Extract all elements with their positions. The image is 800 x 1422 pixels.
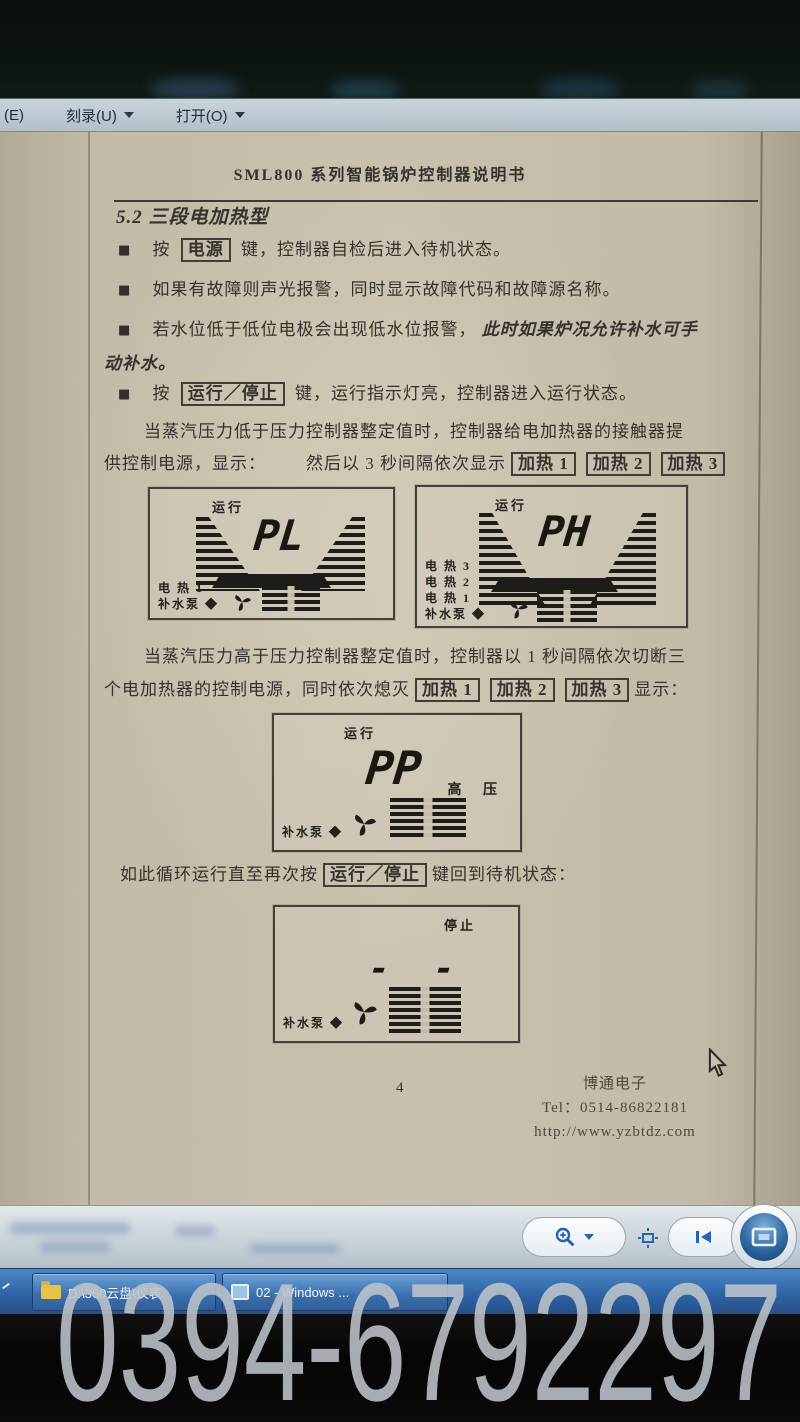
reflection-blob (690, 80, 750, 98)
para1-line2: 供控制电源，显示：然后以 3 秒间隔依次显示加热 1加热 2加热 3 (104, 452, 730, 476)
bullet-2: ■ 如果有故障则声光报警，同时显示故障代码和故障源名称。 (118, 278, 621, 303)
lcd-status-label: 停止 (444, 915, 476, 934)
company-tel: Tel：0514-86822181 (500, 1096, 730, 1120)
reflection-blob (330, 80, 400, 98)
fan-icon (348, 808, 380, 840)
reflection-blob (540, 78, 620, 98)
para2-line2b: 显示： (634, 680, 688, 699)
bullet-marker: ■ (118, 279, 131, 303)
lcd-display-stop: 停止 - - 补水泵 ◆ (273, 905, 520, 1043)
heat2-key-box: 加热 2 (586, 452, 651, 476)
title-rule (114, 200, 758, 202)
lcd-left-labels: 补水泵 ◆ (283, 1015, 344, 1031)
heat2-key-box: 加热 2 (490, 678, 555, 702)
blur-artifact (10, 1222, 130, 1234)
reflection-blob (150, 78, 240, 98)
lcd-display-ph: 运行 PH 电 热 3 电 热 2 电 热 1 补水泵 ◆ (415, 485, 688, 628)
bullet-3: ■ 若水位低于低位电极会出现低水位报警， 此时如果炉况允许补水可手 (118, 318, 698, 343)
page-number: 4 (396, 1076, 405, 1100)
feedpump-label: 补水泵 ◆ (425, 606, 486, 622)
para2-line1: 当蒸汽压力高于压力控制器整定值时，控制器以 1 秒间隔依次切断三 (144, 645, 686, 669)
heat3-key-box: 加热 3 (565, 678, 630, 702)
boiler-stripes-icon (262, 586, 320, 612)
bullet-marker: ■ (118, 383, 131, 407)
chevron-down-icon (124, 112, 134, 118)
heat1-key-box: 加热 1 (415, 678, 480, 702)
lcd-status-label: 运行 (495, 495, 527, 514)
para1-line2a: 供控制电源，显示： (104, 454, 266, 473)
heater3-label: 电 热 3 (425, 558, 486, 574)
bullet-3-italic: 此时如果炉况允许补水可手 (482, 320, 698, 339)
lcd-left-labels: 电 热 1 补水泵 ◆ (158, 580, 219, 612)
power-key-box: 电源 (181, 238, 231, 262)
monitor-dark-area (0, 0, 800, 98)
bullet-4: ■ 按 运行／停止 键，运行指示灯亮，控制器进入运行状态。 (118, 382, 637, 407)
feedpump-label: 补水泵 ◆ (158, 596, 219, 612)
heat1-key-box: 加热 1 (511, 452, 576, 476)
lcd-value: PL (251, 511, 307, 560)
boiler-stripes-icon (537, 590, 597, 622)
heater2-label: 电 热 2 (425, 574, 486, 590)
bullet-1: ■ 按 电源 键，控制器自检后进入待机状态。 (118, 238, 511, 263)
para1-line2b: 然后以 3 秒间隔依次显示 (306, 454, 506, 473)
bullet-3-line2: 动补水。 (104, 352, 176, 376)
page-crease-line (753, 132, 762, 1205)
footer-company-block: 博通电子 Tel：0514-86822181 http://www.yzbtdz… (500, 1072, 730, 1144)
bullet-4-pre: 按 (153, 384, 171, 403)
lcd-left-labels: 电 热 3 电 热 2 电 热 1 补水泵 ◆ (425, 558, 486, 622)
watermark-phone-number: 0394-6792297 (56, 1258, 782, 1422)
para3: 如此循环运行直至再次按运行／停止键回到待机状态： (120, 863, 576, 887)
bullet-marker: ■ (118, 239, 131, 263)
lcd-status-label: 运行 (212, 497, 244, 516)
page-left-edge (88, 132, 90, 1205)
screen: (E) 刻录(U) 打开(O) SML800 系列智能锅炉控制器说明书 5.2 … (0, 0, 800, 1422)
picture-frame-icon (751, 1227, 777, 1247)
bullet-1-post: 键，控制器自检后进入待机状态。 (241, 240, 511, 259)
feedpump-label: 补水泵 ◆ (282, 824, 343, 840)
fan-icon (230, 590, 254, 614)
bullet-marker: ■ (118, 319, 131, 343)
menu-open[interactable]: 打开(O) (176, 105, 245, 126)
heat3-key-box: 加热 3 (661, 452, 726, 476)
chevron-down-icon (235, 112, 245, 118)
menu-burn-label: 刻录(U) (66, 105, 117, 126)
para3-post: 键回到待机状态： (432, 865, 576, 884)
run-stop-key-box: 运行／停止 (323, 863, 427, 887)
menu-burn[interactable]: 刻录(U) (66, 105, 134, 126)
para3-pre: 如此循环运行直至再次按 (120, 865, 318, 884)
document-title: SML800 系列智能锅炉控制器说明书 (0, 164, 760, 188)
bullet-2-text: 如果有故障则声光报警，同时显示故障代码和故障源名称。 (153, 280, 621, 299)
run-stop-key-box: 运行／停止 (181, 382, 285, 406)
lcd-left-labels: 补水泵 ◆ (282, 824, 343, 840)
menubar: (E) 刻录(U) 打开(O) (0, 98, 800, 132)
fan-icon (347, 995, 381, 1029)
boiler-stripes-icon (390, 798, 466, 840)
para2-line2a: 个电加热器的控制电源，同时依次熄灭 (104, 680, 410, 699)
zoom-dropdown-caret-icon[interactable] (584, 1234, 594, 1240)
heater1-label: 电 热 1 (158, 580, 219, 596)
previous-icon[interactable] (694, 1230, 714, 1244)
boiler-stripes-icon (389, 987, 461, 1033)
bullet-4-post: 键，运行指示灯亮，控制器进入运行状态。 (295, 384, 637, 403)
feedpump-label: 补水泵 ◆ (283, 1015, 344, 1031)
bullet-3-pre: 若水位低于低位电极会出现低水位报警， (153, 320, 477, 339)
zoom-magnifier-icon[interactable] (554, 1226, 576, 1248)
lcd-value: PP (363, 741, 424, 795)
company-name: 博通电子 (500, 1072, 730, 1096)
actual-size-button[interactable] (636, 1226, 660, 1250)
lcd-display-pl: 运行 PL 电 热 1 补水泵 ◆ (148, 487, 395, 620)
menu-open-label: 打开(O) (176, 105, 228, 126)
document-page: SML800 系列智能锅炉控制器说明书 5.2 三段电加热型 ■ 按 电源 键，… (0, 132, 800, 1205)
menu-fragment: (E) (4, 107, 24, 124)
taskbar-overflow-icon[interactable] (2, 1283, 12, 1291)
fan-icon (505, 596, 531, 622)
lcd-value: PH (536, 507, 592, 556)
para2-line2: 个电加热器的控制电源，同时依次熄灭加热 1加热 2加热 3显示： (104, 678, 688, 702)
high-pressure-label: 高 压 (448, 779, 507, 799)
lcd-status-label: 运行 (344, 723, 376, 742)
company-url: http://www.yzbtdz.com (500, 1120, 730, 1144)
section-heading: 5.2 三段电加热型 (116, 206, 269, 230)
mouse-cursor-icon (706, 1048, 728, 1078)
lcd-value: - - (367, 949, 469, 989)
para1-line1: 当蒸汽压力低于压力控制器整定值时，控制器给电加热器的接触器提 (144, 420, 684, 444)
heater1-label: 电 热 1 (425, 590, 486, 606)
bullet-1-pre: 按 (153, 240, 171, 259)
blur-artifact (175, 1226, 215, 1236)
lcd-display-pp: 运行 PP 高 压 补水泵 ◆ (272, 713, 522, 852)
